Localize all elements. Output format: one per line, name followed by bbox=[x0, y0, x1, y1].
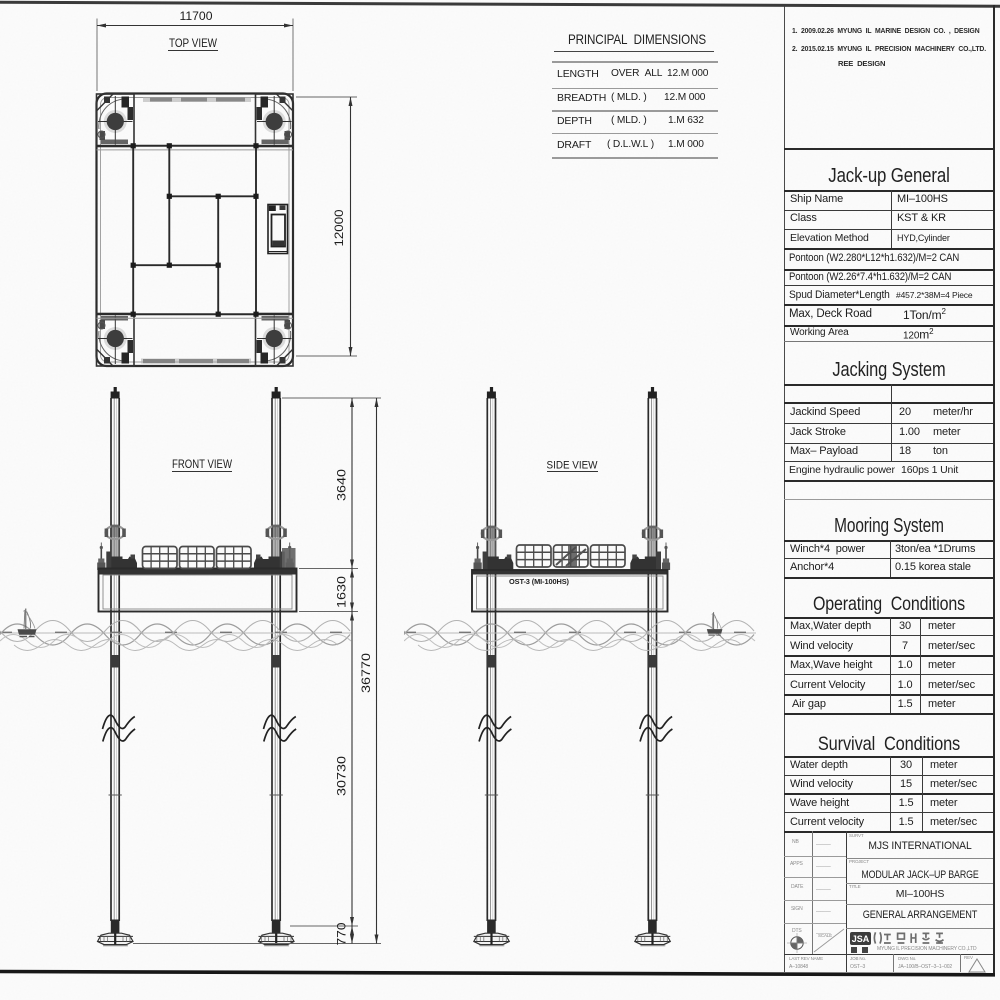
svg-text:SIDE VIEW: SIDE VIEW bbox=[547, 460, 599, 472]
svg-text:1630: 1630 bbox=[335, 576, 349, 608]
svg-text:12000: 12000 bbox=[332, 209, 346, 246]
svg-text:770: 770 bbox=[335, 922, 349, 945]
svg-text:3640: 3640 bbox=[335, 469, 349, 501]
svg-text:JSA: JSA bbox=[852, 934, 870, 944]
svg-text:TOP VIEW: TOP VIEW bbox=[169, 38, 217, 50]
svg-text:OST-3 (MI-100HS): OST-3 (MI-100HS) bbox=[509, 577, 570, 586]
svg-text:30730: 30730 bbox=[335, 756, 349, 796]
svg-text:36770: 36770 bbox=[359, 653, 373, 693]
svg-text:FRONT VIEW: FRONT VIEW bbox=[172, 459, 232, 471]
